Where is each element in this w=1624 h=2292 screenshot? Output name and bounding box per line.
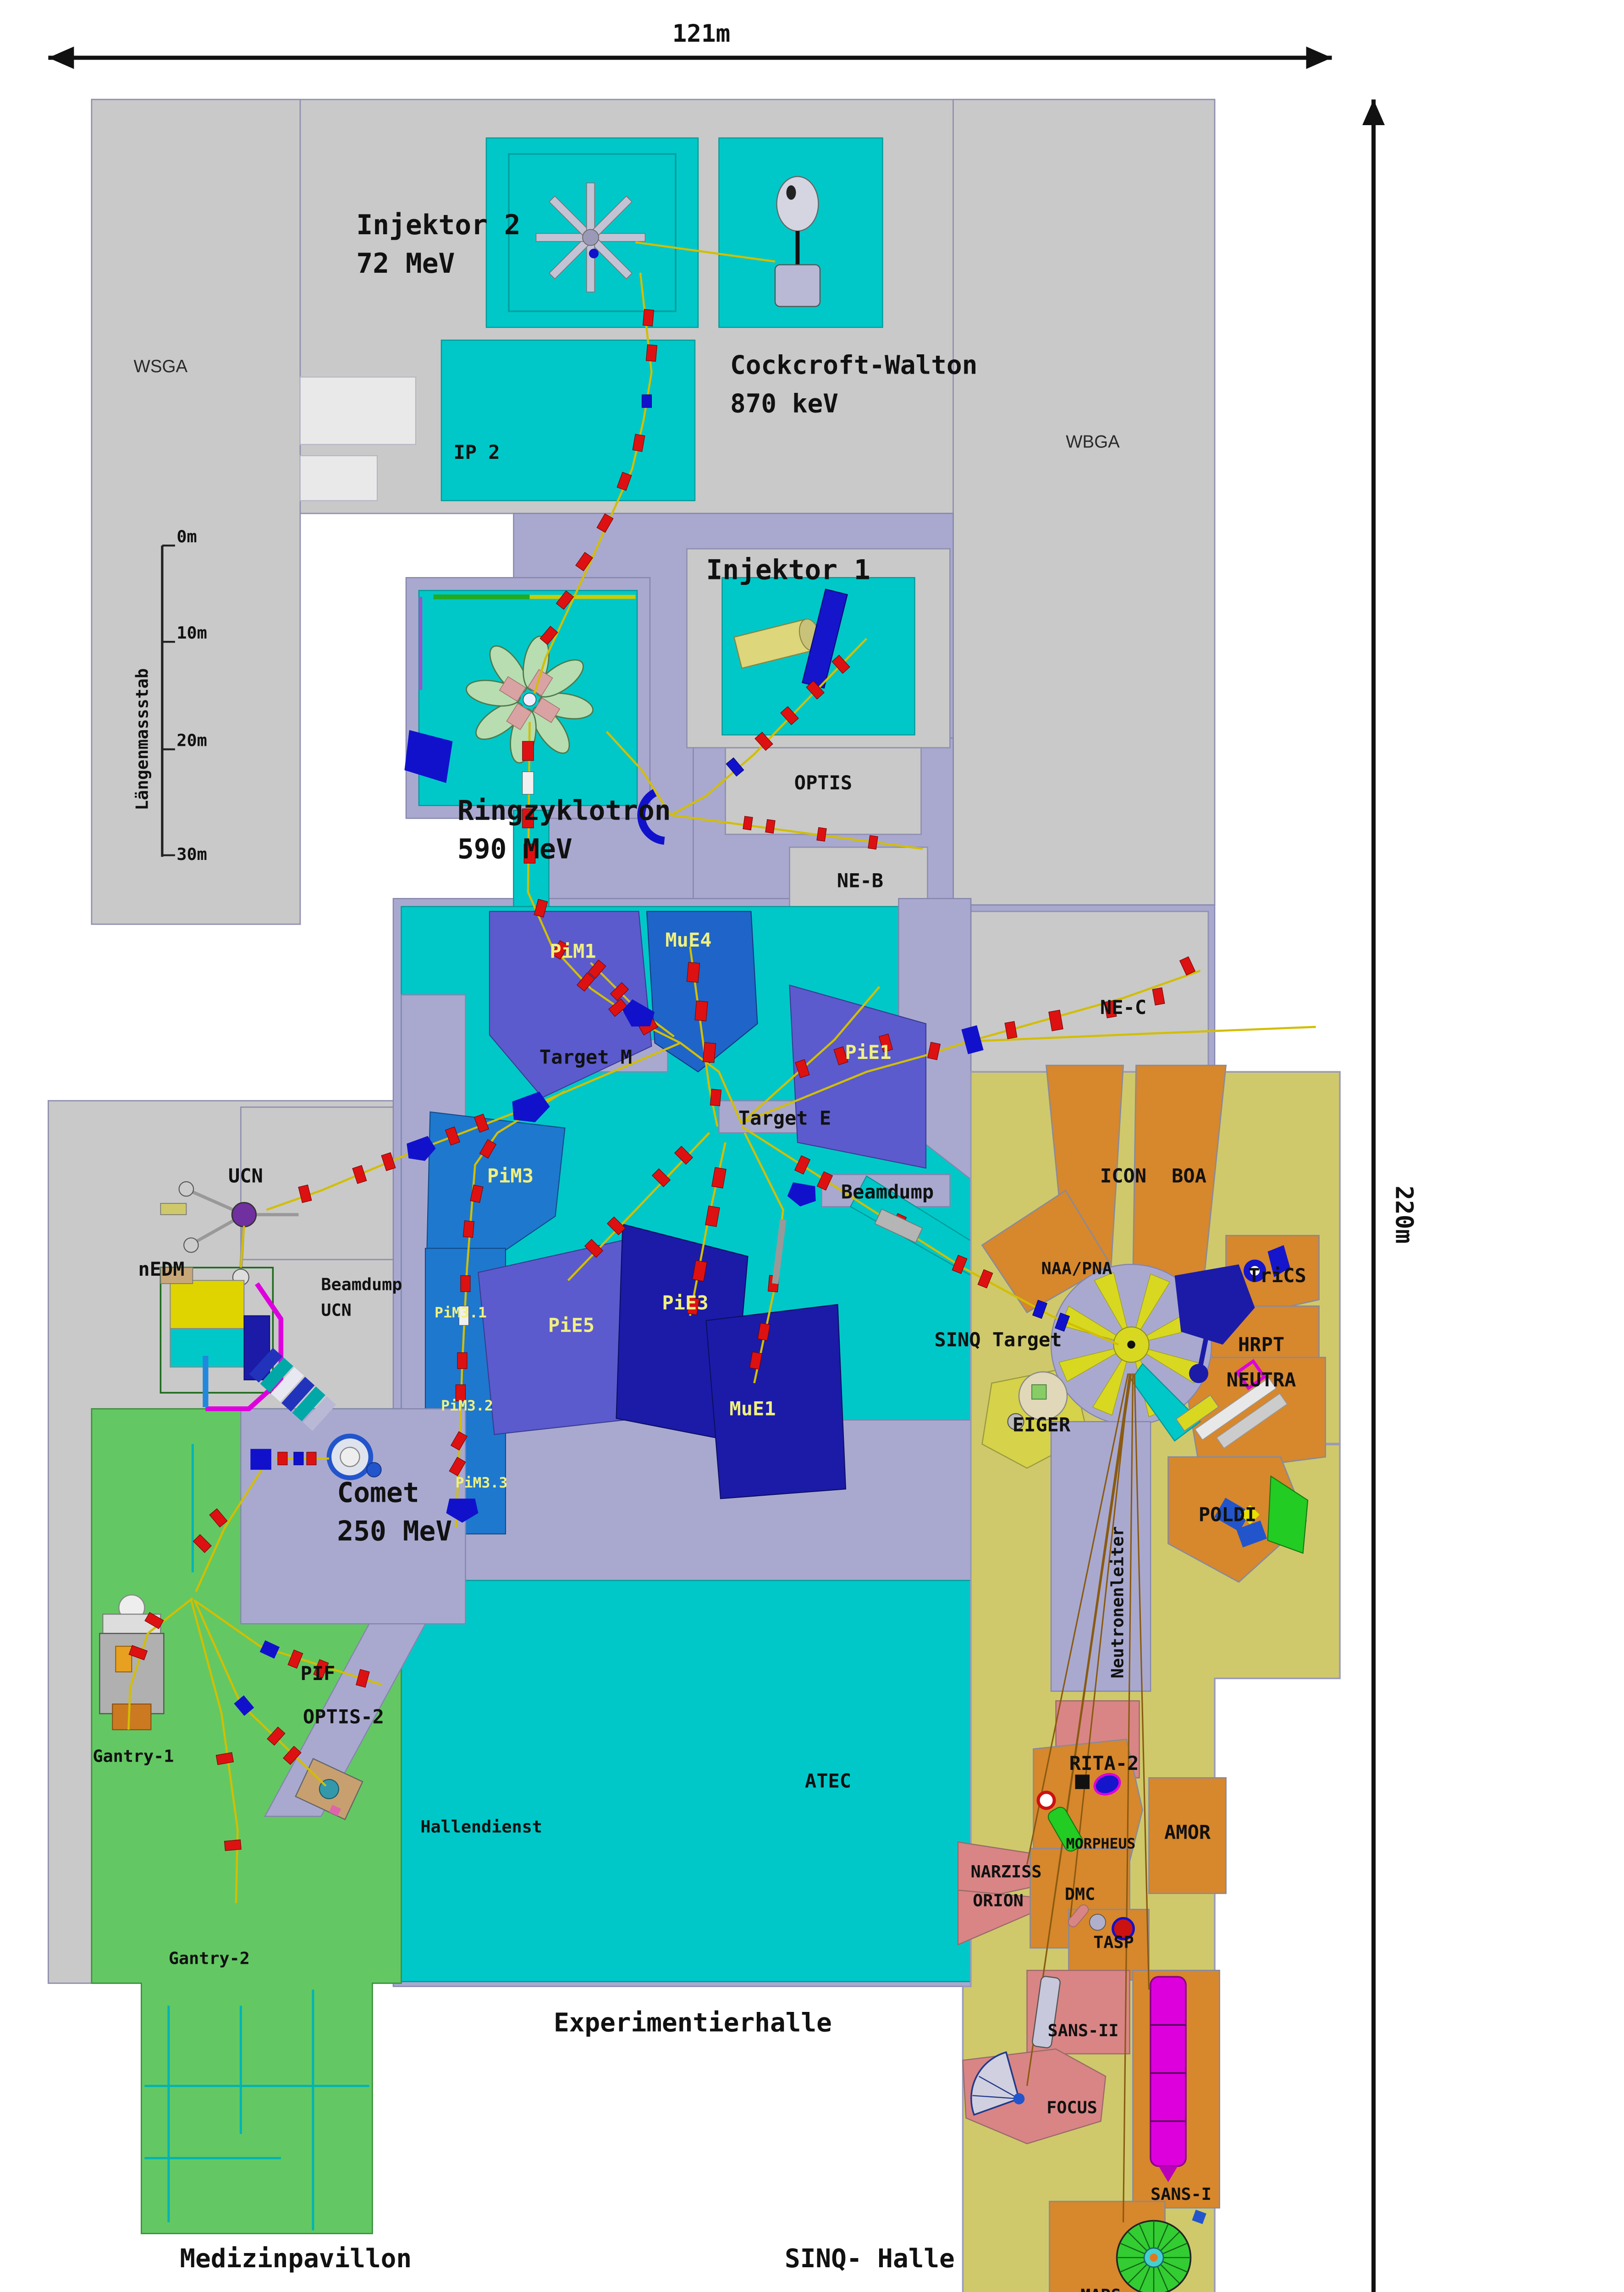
label-boa: BOA [1172, 1165, 1206, 1187]
label-target-m: Target M [539, 1046, 632, 1069]
label-atec: ATEC [805, 1769, 851, 1792]
dimension-width: 121m [48, 20, 1332, 69]
label-morpheus: MORPHEUS [1066, 1835, 1136, 1852]
label-pim1: PiM1 [550, 940, 596, 963]
label-injektor2-energy: 72 MeV [356, 248, 455, 280]
label-ringzyklotron: Ringzyklotron [457, 795, 671, 827]
label-hrpt: HRPT [1238, 1333, 1284, 1355]
label-ucn: UCN [228, 1165, 263, 1187]
label-mars: MARS [1080, 2285, 1121, 2292]
label-ne-b: NE-B [837, 870, 883, 892]
label-wsga: WSGA [134, 357, 188, 376]
scale-tick-0m: 0m [176, 527, 197, 546]
label-neutra: NEUTRA [1227, 1368, 1296, 1391]
label-pim3-1: PiM3.1 [435, 1305, 487, 1321]
label-experimentierhalle: Experimentierhalle [554, 2008, 832, 2038]
area-pie5 [478, 1240, 639, 1435]
label-poldi: POLDI [1199, 1503, 1256, 1526]
label-sans1: SANS-I [1151, 2184, 1211, 2204]
label-comet: Comet [337, 1477, 419, 1509]
label-ringzyklotron-energy: 590 MeV [457, 834, 573, 865]
label-beamdump: Beamdump [841, 1181, 934, 1203]
label-cockcroft: Cockcroft-Walton [730, 351, 977, 380]
label-ne-c: NE-C [1100, 996, 1146, 1019]
label-pif: PIF [300, 1662, 335, 1685]
label-gantry2: Gantry-2 [169, 1948, 250, 1968]
facility-map-svg: 121m 220m 0m 10m 20m 30m Längenmassstab … [0, 0, 1624, 2292]
label-mue1: MuE1 [729, 1397, 776, 1420]
scale-tick-30m: 30m [176, 844, 207, 864]
label-pie1: PiE1 [845, 1041, 891, 1063]
label-focus: FOCUS [1046, 2098, 1097, 2117]
label-ip2: IP 2 [453, 441, 500, 463]
label-sinq-halle: SINQ- Halle [785, 2244, 955, 2274]
label-neutronenleiter: Neutronenleiter [1108, 1526, 1128, 1678]
label-pim3-3: PiM3.3 [456, 1475, 508, 1491]
label-orion: ORION [973, 1890, 1024, 1910]
label-naa-pna: NAA/PNA [1041, 1258, 1112, 1278]
neutron-guide-channel [1051, 1421, 1151, 1691]
label-dmc: DMC [1065, 1884, 1095, 1904]
scale-tick-10m: 10m [176, 623, 207, 643]
scale-tick-20m: 20m [176, 731, 207, 750]
label-injektor2: Injektor 2 [356, 209, 520, 241]
label-cockcroft-energy: 870 keV [730, 389, 838, 419]
label-width-121m: 121m [672, 20, 730, 48]
mars-instrument [1117, 2220, 1191, 2292]
label-height-220m: 220m [1390, 1186, 1418, 1244]
area-mue1 [706, 1305, 846, 1499]
label-wbga: WBGA [1066, 432, 1120, 452]
label-pim3-2: PiM3.2 [441, 1398, 493, 1414]
label-trics: TriCS [1248, 1264, 1306, 1287]
label-optis: OPTIS [794, 771, 852, 794]
experimentierhalle-lower [401, 1581, 971, 1982]
label-nedm: nEDM [138, 1258, 184, 1280]
label-pie3: PiE3 [662, 1291, 708, 1314]
label-pie5: PiE5 [548, 1314, 595, 1336]
room-ip2 [441, 340, 695, 501]
label-beamdump-ucn-1: Beamdump [321, 1274, 402, 1294]
label-icon: ICON [1100, 1165, 1146, 1187]
label-tasp: TASP [1093, 1932, 1134, 1952]
label-amor: AMOR [1164, 1821, 1211, 1843]
scale-bar-title: Längenmassstab [132, 668, 152, 810]
injektor2-cyclotron [536, 183, 645, 292]
label-medizinpavillon: Medizinpavillon [180, 2244, 412, 2274]
sans1-detector-tube [1151, 1977, 1186, 2166]
label-eiger: EIGER [1013, 1413, 1071, 1436]
label-target-e: Target E [738, 1107, 831, 1129]
label-hallendienst: Hallendienst [420, 1817, 542, 1836]
label-sinq-target: SINQ Target [934, 1328, 1062, 1351]
label-rita2: RITA-2 [1069, 1752, 1139, 1774]
label-narziss: NARZISS [971, 1862, 1042, 1881]
label-mue4: MuE4 [665, 929, 711, 951]
label-injektor1: Injektor 1 [706, 555, 870, 586]
label-optis2: OPTIS-2 [303, 1705, 384, 1728]
label-gantry1: Gantry-1 [93, 1746, 174, 1766]
psi-facility-map: 121m 220m 0m 10m 20m 30m Längenmassstab … [0, 0, 1624, 2292]
label-beamdump-ucn-2: UCN [321, 1300, 351, 1320]
label-comet-energy: 250 MeV [337, 1515, 452, 1547]
dimension-height: 220m [1362, 99, 1418, 2292]
label-sans2: SANS-II [1048, 2021, 1119, 2040]
label-pim3: PiM3 [487, 1165, 534, 1187]
